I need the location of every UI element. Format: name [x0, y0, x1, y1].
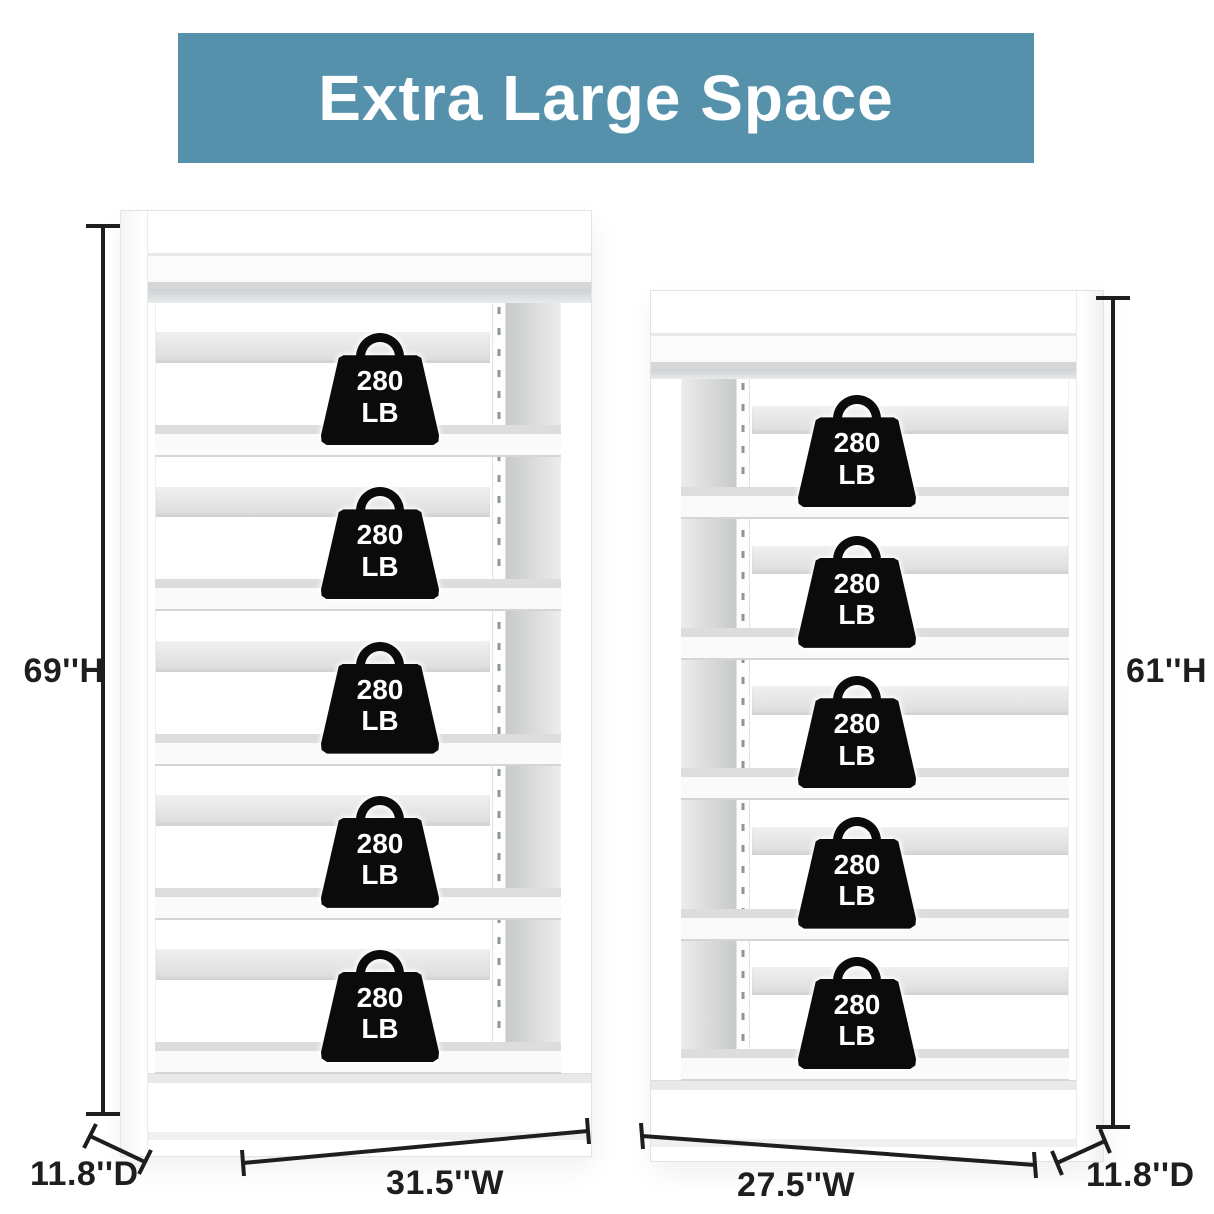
tick: [641, 1123, 643, 1149]
weight-unit: LB: [321, 705, 439, 736]
bookshelf-69in: 280 LB 280 LB: [120, 210, 592, 1157]
bookshelf-61in: 280 LB 280 LB: [650, 290, 1104, 1162]
weight-label: 280 LB: [798, 427, 916, 490]
weight-icon: 280 LB: [321, 796, 439, 908]
depth-label-right: 11.8''D: [1086, 1156, 1195, 1195]
weight-label: 280 LB: [798, 708, 916, 771]
weight-icon: 280 LB: [798, 957, 916, 1069]
height-label-left: 69''H: [16, 652, 112, 691]
weight-unit: LB: [321, 1013, 439, 1044]
perforated-post: [492, 303, 506, 1074]
weight-unit: LB: [798, 599, 916, 630]
shelf-bays: 280 LB 280 LB: [681, 379, 1069, 1081]
weight-icon: 280 LB: [798, 676, 916, 788]
height-label-right: 61''H: [1126, 652, 1207, 691]
weight-unit: LB: [798, 459, 916, 490]
weight-unit: LB: [321, 397, 439, 428]
weight-value: 280: [321, 519, 439, 550]
weight-unit: LB: [321, 859, 439, 890]
weight-unit: LB: [321, 551, 439, 582]
weight-icon: 280 LB: [798, 395, 916, 507]
weight-value: 280: [321, 828, 439, 859]
weight-label: 280 LB: [798, 568, 916, 631]
kick-plate: [651, 1080, 1103, 1161]
weight-icon: 280 LB: [798, 536, 916, 648]
weight-label: 280 LB: [321, 519, 439, 582]
weight-value: 280: [321, 365, 439, 396]
width-label-right: 27.5''W: [706, 1166, 886, 1205]
weight-icon: 280 LB: [321, 487, 439, 599]
side-panel: [1076, 291, 1103, 1161]
weight-label: 280 LB: [798, 849, 916, 912]
weight-label: 280 LB: [321, 674, 439, 737]
weight-label: 280 LB: [321, 982, 439, 1045]
weight-icon: 280 LB: [321, 642, 439, 754]
perforated-post: [736, 379, 750, 1081]
product-diagram: Extra Large Space 280 LB: [0, 0, 1214, 1214]
weight-unit: LB: [798, 880, 916, 911]
shelf-bays: 280 LB 280 LB: [155, 303, 561, 1074]
width-label-left: 31.5''W: [355, 1164, 535, 1203]
weight-unit: LB: [798, 740, 916, 771]
inner-side-panel: [682, 379, 736, 1081]
depth-label-left: 11.8''D: [30, 1155, 139, 1194]
weight-label: 280 LB: [798, 989, 916, 1052]
weight-icon: 280 LB: [321, 950, 439, 1062]
weight-icon: 280 LB: [798, 817, 916, 929]
top-panel: [651, 291, 1103, 379]
inner-side-panel: [506, 303, 560, 1074]
weight-value: 280: [798, 708, 916, 739]
banner: Extra Large Space: [178, 33, 1034, 163]
weight-value: 280: [798, 849, 916, 880]
side-panel: [121, 211, 148, 1156]
weight-label: 280 LB: [321, 365, 439, 428]
weight-value: 280: [321, 674, 439, 705]
weight-value: 280: [798, 427, 916, 458]
kick-plate: [121, 1073, 591, 1156]
weight-value: 280: [321, 982, 439, 1013]
weight-unit: LB: [798, 1020, 916, 1051]
weight-value: 280: [798, 989, 916, 1020]
weight-icon: 280 LB: [321, 333, 439, 445]
weight-value: 280: [798, 568, 916, 599]
tick: [84, 1124, 96, 1148]
weight-label: 280 LB: [321, 828, 439, 891]
top-panel: [121, 211, 591, 303]
banner-title: Extra Large Space: [318, 61, 894, 135]
